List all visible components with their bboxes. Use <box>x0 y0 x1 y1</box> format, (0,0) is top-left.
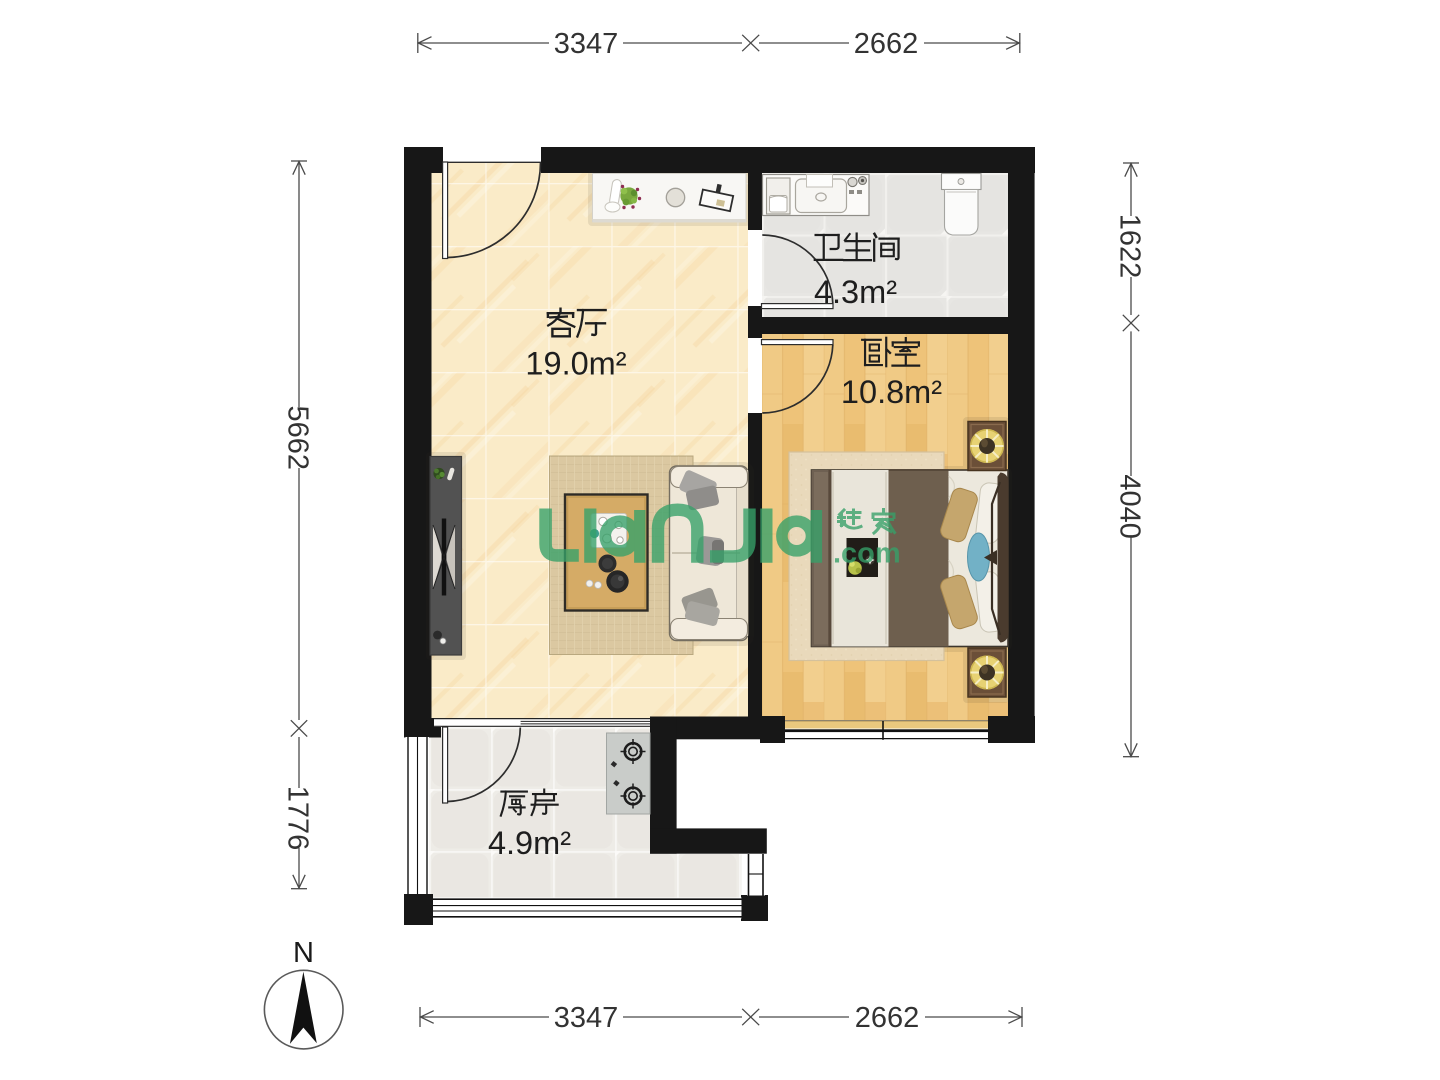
svg-text:10.8m²: 10.8m² <box>841 374 942 410</box>
svg-text:1776: 1776 <box>282 786 314 851</box>
svg-text:4.9m²: 4.9m² <box>488 825 571 861</box>
svg-text:4.3m²: 4.3m² <box>814 274 897 310</box>
svg-text:N: N <box>293 937 314 969</box>
svg-text:3347: 3347 <box>554 1002 619 1034</box>
svg-text:19.0m²: 19.0m² <box>525 346 626 382</box>
svg-text:3347: 3347 <box>554 28 619 60</box>
svg-text:.com: .com <box>833 538 901 570</box>
svg-text:4040: 4040 <box>1114 474 1146 539</box>
svg-text:5662: 5662 <box>282 405 314 470</box>
svg-text:2662: 2662 <box>855 1002 920 1034</box>
svg-text:1622: 1622 <box>1114 214 1146 279</box>
svg-text:2662: 2662 <box>854 28 919 60</box>
